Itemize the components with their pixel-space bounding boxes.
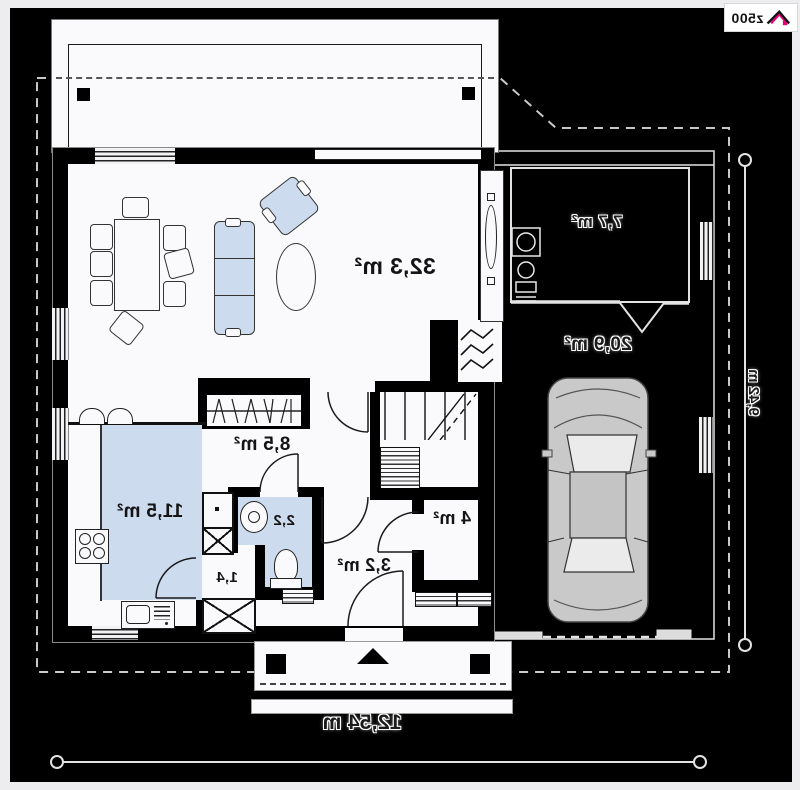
pantry-label: 1,4 xyxy=(187,562,267,592)
garage-label: 20,9 m² xyxy=(528,329,668,361)
porch-column xyxy=(266,654,286,674)
page-frame-top xyxy=(0,0,800,8)
roof-icon xyxy=(767,9,791,27)
brand-logo-inner: z500 xyxy=(731,9,790,27)
brand-logo-text: z500 xyxy=(731,10,763,26)
page-frame-left xyxy=(0,0,10,790)
hall-label: 8,5 m² xyxy=(212,428,312,462)
entrance-door-gap xyxy=(345,628,403,642)
entrance-arrow-icon xyxy=(357,648,389,664)
dimension-label-depth-wrap: 9,42 m xyxy=(723,332,783,452)
wc-label: 2,2 xyxy=(244,506,324,534)
porch-column xyxy=(470,654,490,674)
dimension-label-width: 12,54 m xyxy=(242,705,482,741)
vestibule-label: 3,2 m² xyxy=(314,548,414,582)
porch-dashed-line xyxy=(260,683,506,685)
dimension-label-depth: 9,42 m xyxy=(744,369,761,416)
page-frame-bottom xyxy=(0,782,800,790)
page-frame-right xyxy=(792,0,800,790)
brand-logo: z500 xyxy=(724,3,798,32)
living-room-label: 32,3 m² xyxy=(325,248,465,284)
bathroom-label: 4 m² xyxy=(402,502,502,534)
kitchen-label: 11,5 m² xyxy=(100,494,200,530)
storage-room-label: 7,7 m² xyxy=(527,206,667,238)
floor-plan: 32,3 m² 11,5 m² 8,5 m² 3,2 m² 4 m² 2,2 1… xyxy=(0,0,800,790)
